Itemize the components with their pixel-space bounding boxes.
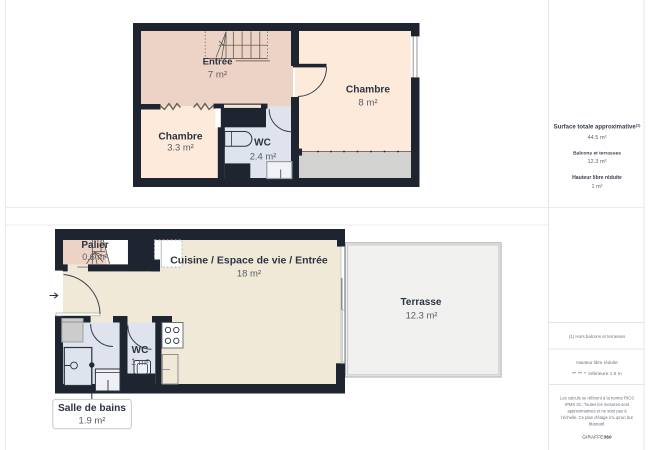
svg-text:12.3 m²: 12.3 m² [406,310,438,321]
svg-text:1.9 m²: 1.9 m² [79,416,106,427]
svg-text:8 m²: 8 m² [358,98,378,109]
svg-text:1 m²: 1 m² [592,184,603,190]
svg-text:Balcons et terrasses: Balcons et terrasses [573,150,621,156]
svg-text:Palier: Palier [81,240,108,251]
svg-text:44.5 m²: 44.5 m² [588,135,607,141]
svg-text:Salle de bains: Salle de bains [58,403,126,414]
svg-text:0.6 m²: 0.6 m² [82,252,108,262]
svg-text:l'échelle. Ce plan d'étage n'a: l'échelle. Ce plan d'étage n'a qu'un but [561,415,633,420]
svg-text:Les calculs se réfèrent à la n: Les calculs se réfèrent à la norme RICS [560,396,634,401]
svg-text:Terrasse: Terrasse [401,297,442,308]
svg-text:illustratif.: illustratif. [589,422,606,427]
svg-text:Hauteur libre réduite: Hauteur libre réduite [572,175,622,181]
svg-text:GIRAFFE360: GIRAFFE360 [582,435,612,440]
svg-text:12.3 m²: 12.3 m² [588,159,607,165]
svg-text:18 m²: 18 m² [237,269,261,280]
svg-text:Entrée: Entrée [203,57,233,68]
svg-text:Hauteur libre réduite: Hauteur libre réduite [576,360,618,365]
svg-text:Surface totale approximative(1: Surface totale approximative(1) [554,124,641,131]
svg-text:WC: WC [132,345,149,356]
svg-text:2.4 m²: 2.4 m² [250,151,277,162]
svg-text:approximatives et ne sont pas: approximatives et ne sont pas à [567,409,627,414]
svg-text:Inférieure 1.5 m: Inférieure 1.5 m [588,371,622,377]
svg-text:(1) Hors balcons et terrasses: (1) Hors balcons et terrasses [569,334,626,339]
svg-text:7 m²: 7 m² [208,70,228,81]
svg-text:WC: WC [254,138,271,149]
svg-text:1 m²: 1 m² [131,357,149,367]
svg-text:Chambre: Chambre [346,85,390,96]
svg-text:3.3 m²: 3.3 m² [167,142,194,153]
svg-text:Cuisine / Espace de vie / Entr: Cuisine / Espace de vie / Entrée [170,255,328,267]
svg-text:IPMS 3C. Toutes les mesures so: IPMS 3C. Toutes les mesures sont [565,402,630,407]
